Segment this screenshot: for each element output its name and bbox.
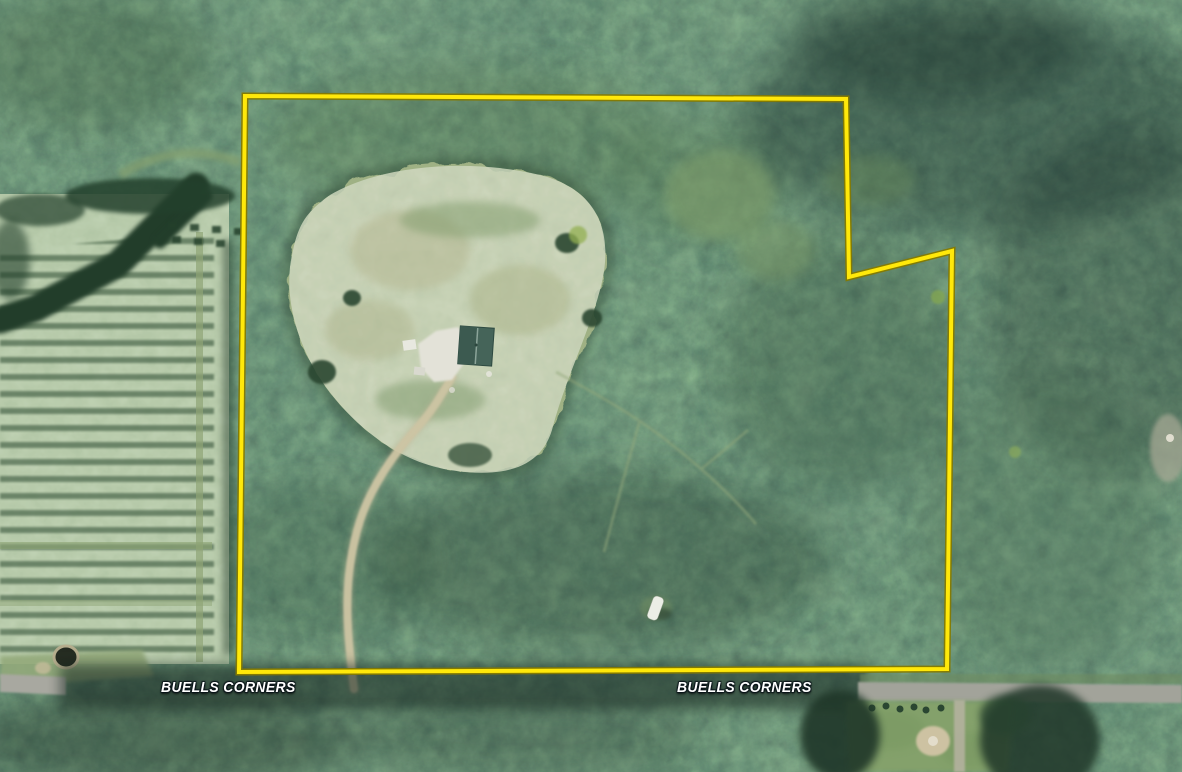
aerial-imagery bbox=[0, 0, 1182, 772]
crop-field bbox=[0, 178, 235, 664]
road-label-buells-corners-left: BUELLS CORNERS bbox=[161, 679, 296, 696]
residential-driveway bbox=[954, 700, 965, 772]
road-left-segment bbox=[0, 674, 66, 695]
road-label-buells-corners-right: BUELLS CORNERS bbox=[677, 679, 812, 696]
aerial-property-map: BUELLS CORNERS BUELLS CORNERS bbox=[0, 0, 1182, 772]
barn-building bbox=[458, 326, 495, 366]
